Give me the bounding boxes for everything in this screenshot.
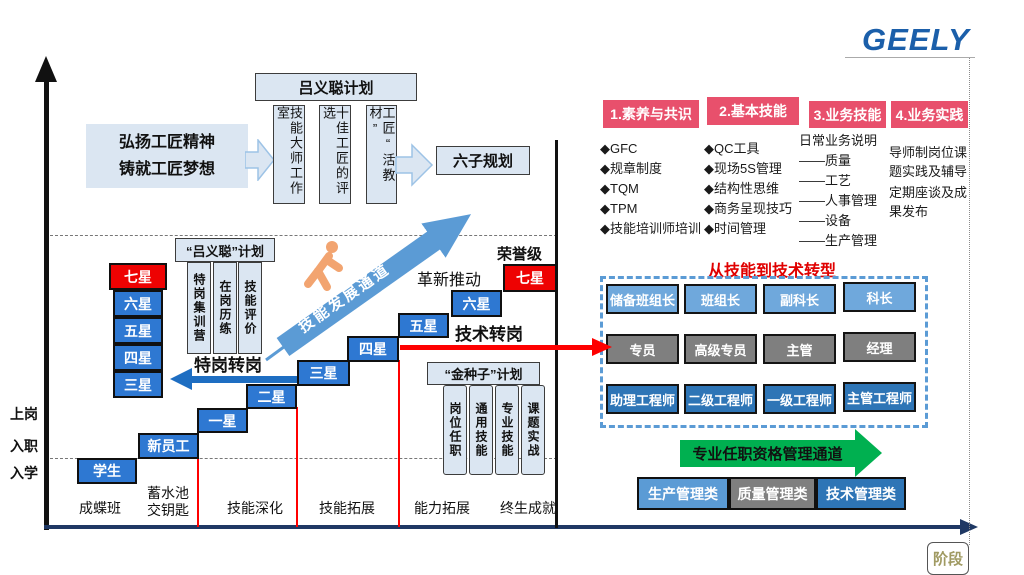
category-header-1: 1.素养与共识 xyxy=(603,100,699,128)
quoted-plan-column-2-label: 在岗历练 xyxy=(219,280,231,336)
qualification-arrow: 专业任职资格管理通道 xyxy=(680,440,855,467)
special-transfer-arrowhead-icon xyxy=(170,368,192,390)
staircase-step-label: 四星 xyxy=(359,339,387,359)
category-item: ◆QC工具 xyxy=(704,139,810,159)
category-header-3-label: 3.业务技能 xyxy=(814,105,882,125)
grid-cell: 班组长 xyxy=(684,284,757,314)
staircase-step-label: 一星 xyxy=(209,411,237,431)
staircase-step: 学生 xyxy=(77,458,137,484)
category-item: ◆GFC xyxy=(600,139,704,159)
grid-cell: 经理 xyxy=(843,332,916,362)
category-item: ◆TQM xyxy=(600,179,704,199)
stage-label: 技能深化 xyxy=(213,500,297,517)
staircase-step: 六星 xyxy=(451,290,502,317)
category-list-2: ◆QC工具 ◆现场5S管理 ◆结构性思维 ◆商务呈现技巧 ◆时间管理 xyxy=(704,139,810,239)
left-star-top: 七星 xyxy=(109,263,167,290)
staircase-step-label: 三星 xyxy=(310,363,338,383)
category-header-3: 3.业务技能 xyxy=(809,101,886,128)
left-star-item-label: 五星 xyxy=(124,321,152,341)
lvc-plan-column-3: 工匠“活教材” xyxy=(366,105,397,204)
grid-cell-label: 经理 xyxy=(866,338,892,357)
tech-transfer-label: 技术转岗 xyxy=(455,320,523,345)
grid-cell-label: 主管工程师 xyxy=(847,388,912,407)
stage-label: 能力拓展 xyxy=(398,500,486,517)
left-star-item-label: 三星 xyxy=(124,375,152,395)
track-box-production: 生产管理类 xyxy=(637,477,729,510)
grid-cell: 一级工程师 xyxy=(763,384,836,414)
running-person-icon xyxy=(298,238,350,296)
gold-seed-title-label: “金种子”计划 xyxy=(444,364,522,383)
grid-cell-label: 储备班组长 xyxy=(610,290,675,309)
category-header-4: 4.业务实践 xyxy=(891,101,968,128)
mission-line1: 弘扬工匠精神 xyxy=(119,129,215,156)
category-item: 定期座谈及成果发布 xyxy=(889,183,973,221)
left-star-item-label: 六星 xyxy=(124,294,152,314)
grid-cell-label: 科长 xyxy=(866,288,892,307)
category-item: ◆商务呈现技巧 xyxy=(704,199,810,219)
left-star-item-label: 四星 xyxy=(124,348,152,368)
gold-seed-column-3: 专业技能 xyxy=(495,385,519,475)
grid-cell-label: 专员 xyxy=(629,340,655,359)
tech-transfer-arrow xyxy=(400,345,592,350)
grid-cell-label: 主管 xyxy=(786,340,812,359)
stage-label: 技能拓展 xyxy=(305,500,389,517)
grid-cell: 科长 xyxy=(843,282,916,312)
lvc-plan-column-1: 技能大师工作室 xyxy=(273,105,305,204)
staircase-step-label: 六星 xyxy=(463,294,491,314)
track-box-technology: 技术管理类 xyxy=(816,477,906,510)
category-item: ◆规章制度 xyxy=(600,159,704,179)
flow-arrow-icon xyxy=(394,143,434,187)
grid-cell: 副科长 xyxy=(763,284,836,314)
category-item: ◆现场5S管理 xyxy=(704,159,810,179)
left-star-top-label: 七星 xyxy=(124,267,152,287)
grid-cell: 主管 xyxy=(763,334,836,364)
tech-transfer-arrowhead-icon xyxy=(592,338,612,356)
left-star-item: 五星 xyxy=(113,317,163,344)
mission-box: 弘扬工匠精神 铸就工匠梦想 xyxy=(86,124,248,188)
category-item: 导师制岗位课题实践及辅导 xyxy=(889,143,973,181)
logo-underline xyxy=(845,57,975,58)
gold-seed-column-1: 岗位任职 xyxy=(443,385,467,475)
category-list-1: ◆GFC ◆规章制度 ◆TQM ◆TPM ◆技能培训师培训 xyxy=(600,139,704,239)
track-box-label: 技术管理类 xyxy=(826,484,896,504)
right-dotted-line xyxy=(969,57,970,545)
staircase-step: 四星 xyxy=(347,336,399,362)
grid-cell: 高级专员 xyxy=(684,334,757,364)
staircase-step: 三星 xyxy=(297,360,350,386)
grid-cell: 二级工程师 xyxy=(684,384,757,414)
y-axis-arrow-icon xyxy=(35,56,57,82)
flow-arrow-icon xyxy=(245,139,275,181)
staircase-step-label: 五星 xyxy=(410,316,438,336)
staircase-step: 一星 xyxy=(197,408,248,433)
quoted-plan-column-3-label: 技能评价 xyxy=(244,280,256,336)
stage-label: 蓄水池 交钥匙 xyxy=(136,485,200,519)
gold-seed-column-4: 课题实战 xyxy=(521,385,545,475)
qualification-arrow-label: 专业任职资格管理通道 xyxy=(692,443,842,464)
y-axis-label: 上岗 xyxy=(10,404,38,424)
grid-cell: 专员 xyxy=(606,334,679,364)
category-header-2-label: 2.基本技能 xyxy=(719,101,787,121)
six-plan-box: 六子规划 xyxy=(436,146,530,175)
category-item: ◆结构性思维 xyxy=(704,179,810,199)
special-transfer-arrow xyxy=(192,376,298,383)
gold-seed-title: “金种子”计划 xyxy=(427,362,540,385)
grid-cell-label: 副科长 xyxy=(780,290,819,309)
category-item: ◆TPM xyxy=(600,199,704,219)
slide-canvas: GEELY 弘扬工匠精神 铸就工匠梦想 吕义聪计划 技能大师工作室 十佳工匠的评… xyxy=(0,0,1024,575)
stage-tag-label: 阶段 xyxy=(933,548,963,569)
qualification-arrowhead-icon xyxy=(855,429,882,477)
category-item: ◆技能培训师培训 xyxy=(600,219,704,239)
gold-seed-column-2: 通用技能 xyxy=(469,385,493,475)
category-list-4: 导师制岗位课题实践及辅导 定期座谈及成果发布 xyxy=(889,143,973,221)
lvc-plan-column-2-label: 十佳工匠的评选 xyxy=(322,106,348,203)
quoted-plan-title-label: “吕义聪”计划 xyxy=(186,241,264,260)
quoted-plan-column-1: 特岗集训营 xyxy=(187,262,211,354)
category-item: ——生产管理 xyxy=(799,231,911,251)
staircase-step: 新员工 xyxy=(138,433,199,459)
category-header-4-label: 4.业务实践 xyxy=(896,105,964,125)
grid-cell-label: 一级工程师 xyxy=(767,390,832,409)
staircase-step-label: 学生 xyxy=(93,461,121,481)
grid-cell-label: 班组长 xyxy=(701,290,740,309)
track-box-label: 质量管理类 xyxy=(738,484,808,504)
quoted-plan-column-1-label: 特岗集训营 xyxy=(193,273,205,343)
gold-seed-column-2-label: 通用技能 xyxy=(475,402,487,458)
gold-seed-column-3-label: 专业技能 xyxy=(501,402,513,458)
track-box-quality: 质量管理类 xyxy=(729,477,816,510)
lvc-plan-title-label: 吕义聪计划 xyxy=(298,77,373,98)
category-header-2: 2.基本技能 xyxy=(707,97,799,125)
staircase-step: 七星 xyxy=(503,264,557,292)
staircase-step-label: 二星 xyxy=(258,387,286,407)
quoted-plan-column-2: 在岗历练 xyxy=(213,262,237,354)
stage-label: 终生成就 xyxy=(488,500,568,517)
gold-seed-column-1-label: 岗位任职 xyxy=(449,402,461,458)
mission-line2: 铸就工匠梦想 xyxy=(119,156,215,183)
grid-cell: 助理工程师 xyxy=(606,384,679,414)
honor-level-label: 荣誉级 xyxy=(497,243,542,264)
track-box-label: 生产管理类 xyxy=(648,484,718,504)
grid-cell: 储备班组长 xyxy=(606,284,679,314)
innovation-label: 革新推动 xyxy=(417,266,481,290)
left-star-item: 六星 xyxy=(113,290,163,317)
lvc-plan-title: 吕义聪计划 xyxy=(255,73,417,101)
grid-cell: 主管工程师 xyxy=(843,382,916,412)
y-axis-label: 入职 xyxy=(10,436,38,456)
category-header-1-label: 1.素养与共识 xyxy=(610,104,692,124)
stage-tag-box: 阶段 xyxy=(927,542,969,575)
category-item: ◆时间管理 xyxy=(704,219,810,239)
left-star-item: 三星 xyxy=(113,371,163,398)
gold-seed-column-4-label: 课题实战 xyxy=(527,402,539,458)
grid-cell-label: 高级专员 xyxy=(694,340,746,359)
special-transfer-label: 特岗转岗 xyxy=(194,351,262,376)
staircase-step: 二星 xyxy=(246,384,297,409)
six-plan-label: 六子规划 xyxy=(453,150,513,171)
stage-label: 成蝶班 xyxy=(68,500,132,517)
staircase-step: 五星 xyxy=(398,313,449,338)
x-axis-line xyxy=(44,525,962,529)
left-star-item: 四星 xyxy=(113,344,163,371)
staircase-step-label: 新员工 xyxy=(148,436,190,456)
grid-cell-label: 二级工程师 xyxy=(688,390,753,409)
lvc-plan-column-3-label: 工匠“活教材” xyxy=(369,106,395,203)
lvc-plan-column-2: 十佳工匠的评选 xyxy=(319,105,351,204)
staircase-step-label: 七星 xyxy=(516,268,544,288)
panel-divider-line xyxy=(555,140,558,528)
geely-logo: GEELY xyxy=(862,22,970,58)
y-axis-line xyxy=(44,72,49,530)
grid-cell-label: 助理工程师 xyxy=(610,390,675,409)
lvc-plan-column-1-label: 技能大师工作室 xyxy=(276,106,302,203)
y-axis-label: 入学 xyxy=(10,463,38,483)
